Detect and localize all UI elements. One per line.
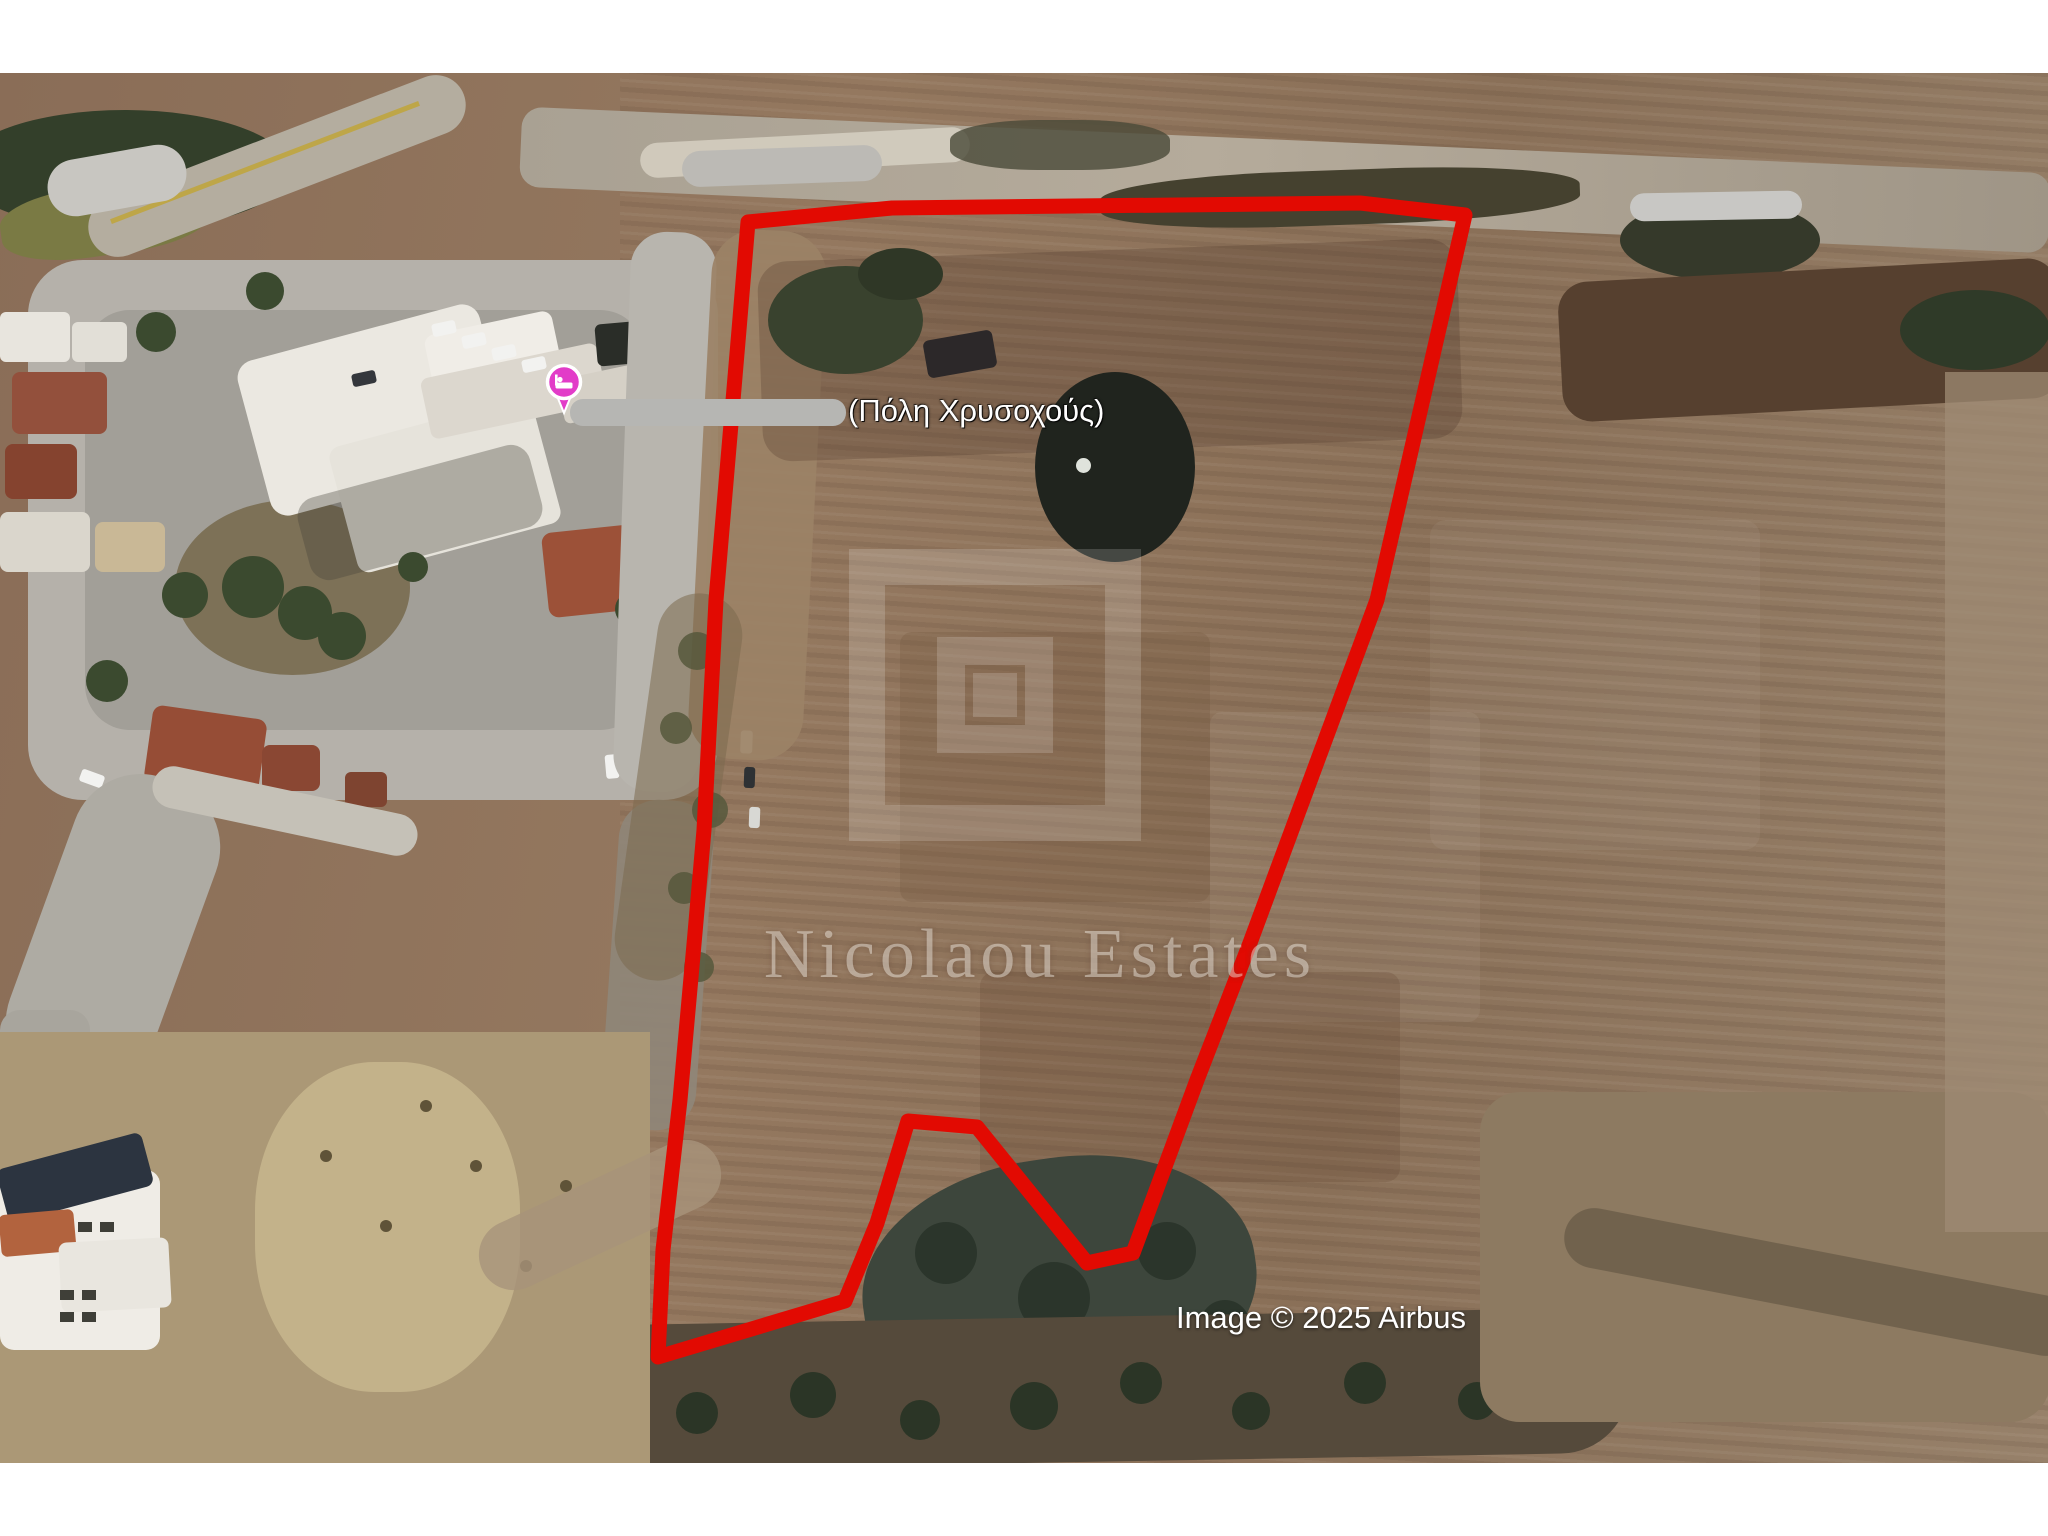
- tree: [222, 556, 284, 618]
- tree-cluster: [1900, 290, 2048, 370]
- brand-logo-watermark-icon: [845, 545, 1145, 845]
- building: [58, 1237, 172, 1313]
- brand-watermark-text: Nicolaou Estates: [640, 915, 1440, 995]
- terrain-patch: [1076, 458, 1091, 473]
- tree: [318, 612, 366, 660]
- tree: [678, 632, 716, 670]
- tree: [320, 1150, 332, 1162]
- tree: [668, 872, 700, 904]
- building: [95, 522, 165, 572]
- top-margin: [0, 0, 2048, 73]
- tree: [470, 1160, 482, 1172]
- building: [0, 512, 90, 572]
- tree: [398, 552, 428, 582]
- building: [0, 312, 70, 362]
- building-roof: [12, 372, 107, 434]
- window: [82, 1290, 96, 1300]
- tree: [692, 792, 728, 828]
- tree: [1010, 1382, 1058, 1430]
- tree-cluster: [950, 120, 1170, 170]
- building: [72, 322, 127, 362]
- imagery-attribution: Image © 2025 Airbus: [1176, 1300, 1466, 1336]
- tree: [380, 1220, 392, 1232]
- bottom-margin: [0, 1463, 2048, 1536]
- place-label: (Πόλη Χρυσοχούς): [848, 393, 1104, 429]
- tree-cluster: [858, 248, 943, 300]
- car: [744, 767, 756, 788]
- tree: [900, 1400, 940, 1440]
- redacted-label: [681, 145, 882, 188]
- window: [60, 1312, 74, 1322]
- building-roof: [5, 444, 77, 499]
- building-roof: [345, 772, 387, 807]
- window: [100, 1222, 114, 1232]
- terrain-patch: [1430, 520, 1760, 850]
- window: [82, 1312, 96, 1322]
- tree: [676, 1392, 718, 1434]
- tree: [420, 1100, 432, 1112]
- redacted-label: [1630, 191, 1802, 222]
- redacted-label: [570, 399, 846, 426]
- tree: [136, 312, 176, 352]
- tree: [790, 1372, 836, 1418]
- tree: [915, 1222, 977, 1284]
- car: [749, 807, 761, 828]
- tree: [162, 572, 208, 618]
- tree: [246, 272, 284, 310]
- building-roof: [262, 745, 320, 791]
- tree: [1232, 1392, 1270, 1430]
- terrain-patch: [980, 972, 1400, 1182]
- map-viewport[interactable]: Nicolaou Estates (Πόλη Χρυσοχούς) Image …: [0, 0, 2048, 1536]
- tree: [1138, 1222, 1196, 1280]
- tree: [86, 660, 128, 702]
- tree: [1344, 1362, 1386, 1404]
- window: [60, 1290, 74, 1300]
- tree: [1120, 1362, 1162, 1404]
- window: [78, 1222, 92, 1232]
- lodging-pin-icon[interactable]: [542, 362, 586, 416]
- tree: [660, 712, 692, 744]
- terrain-patch: [1945, 372, 2048, 1232]
